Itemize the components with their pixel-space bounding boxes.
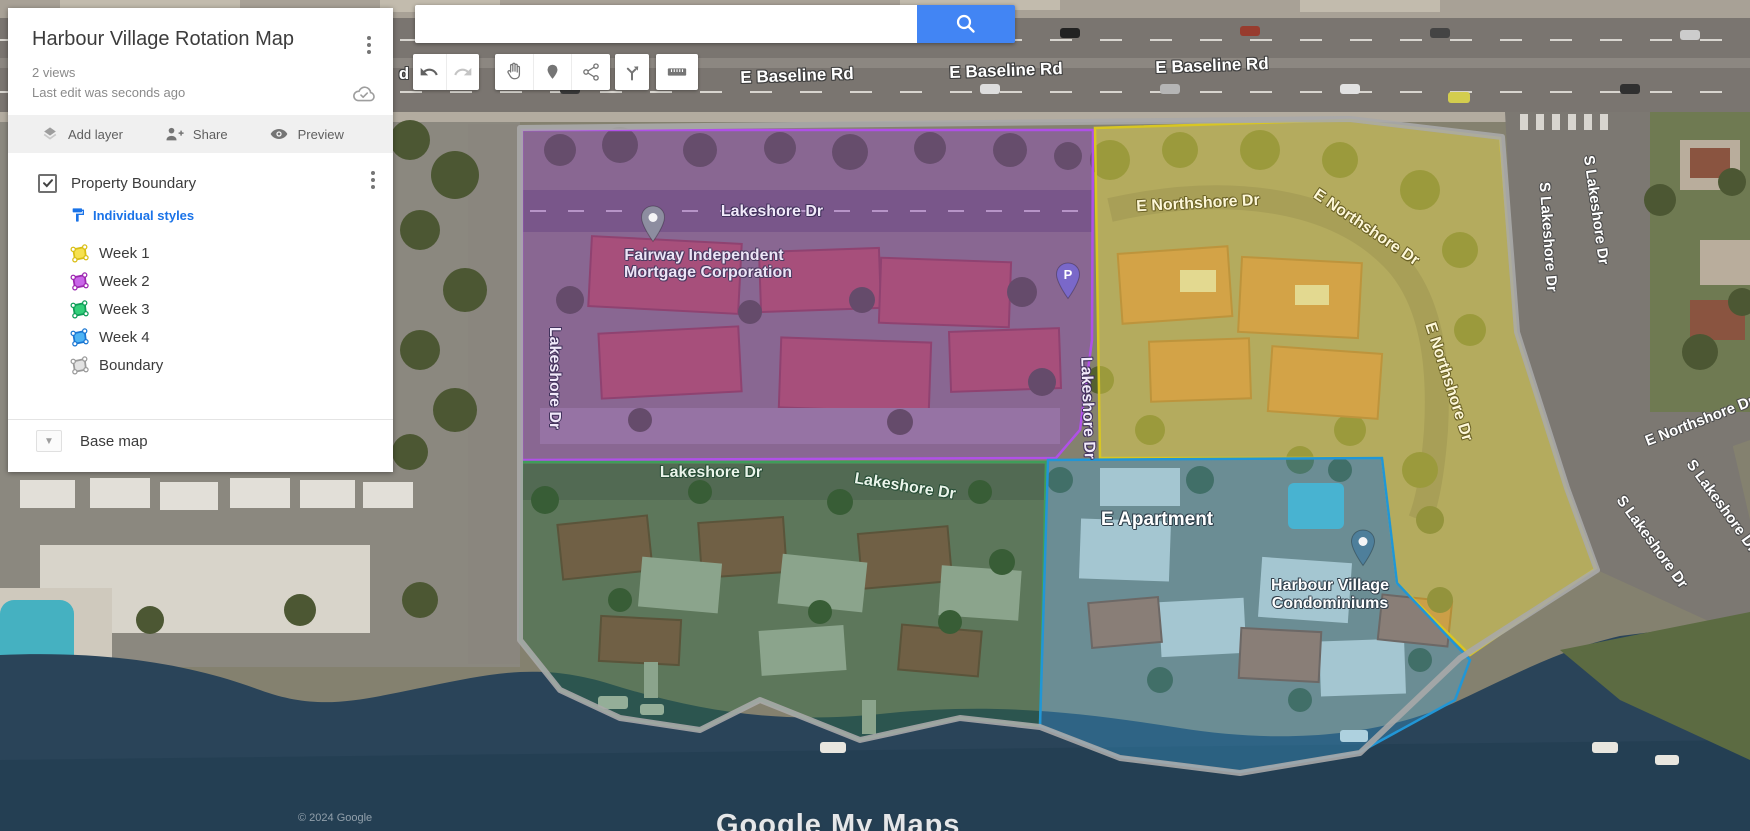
search-bar — [415, 5, 1015, 43]
person-add-icon — [163, 124, 185, 144]
redo-button[interactable] — [446, 54, 480, 90]
location-pin-gray[interactable] — [640, 205, 666, 248]
search-input[interactable] — [415, 5, 917, 43]
draw-line-button[interactable] — [571, 54, 610, 90]
undo-button[interactable] — [413, 54, 446, 90]
add-directions-button[interactable] — [615, 54, 649, 90]
layer-checkbox[interactable] — [38, 174, 57, 193]
page-title: Harbour Village Rotation Map — [32, 28, 379, 51]
layer-item-label: Week 4 — [99, 329, 150, 346]
layer-item-week-3[interactable]: Week 3 — [8, 295, 393, 323]
individual-styles-label: Individual styles — [93, 208, 194, 223]
polygon-icon — [68, 326, 91, 349]
search-button[interactable] — [917, 5, 1015, 43]
share-label: Share — [193, 127, 228, 142]
base-map-label[interactable]: Base map — [80, 433, 148, 450]
location-pin-blue[interactable] — [1350, 529, 1376, 572]
redo-icon — [453, 62, 473, 82]
paint-roller-icon — [70, 207, 86, 223]
my-maps-app: dE Baseline RdE Baseline RdE Baseline Rd… — [0, 0, 1750, 831]
toolbar-measure-group — [656, 54, 698, 90]
last-edit-status: Last edit was seconds ago — [32, 83, 379, 103]
layer-item-label: Week 1 — [99, 245, 150, 262]
parking-pin[interactable]: P — [1055, 262, 1081, 305]
preview-button[interactable]: Preview — [262, 123, 350, 145]
base-map-row: ▼ Base map — [8, 420, 393, 462]
add-marker-button[interactable] — [533, 54, 572, 90]
base-map-expander[interactable]: ▼ — [36, 430, 62, 452]
layer-options-menu[interactable] — [367, 167, 379, 193]
toolbar-draw-group — [495, 54, 610, 90]
draw-line-icon — [581, 62, 601, 82]
layer-item-week-1[interactable]: Week 1 — [8, 239, 393, 267]
preview-label: Preview — [298, 127, 344, 142]
add-layer-button[interactable]: Add layer — [34, 123, 129, 145]
polygon-icon — [68, 298, 91, 321]
toolbar-directions-group — [615, 54, 649, 90]
panel-actions-bar: Add layer Share Preview — [8, 115, 393, 153]
polygon-icon — [68, 354, 91, 377]
hand-icon — [503, 61, 525, 83]
map-editor-panel: Harbour Village Rotation Map 2 views Las… — [8, 8, 393, 472]
layer-item-week-2[interactable]: Week 2 — [8, 267, 393, 295]
map-attribution: © 2024 Google — [298, 812, 372, 824]
pan-hand-button[interactable] — [495, 54, 533, 90]
google-watermark: Google My Maps — [716, 809, 960, 831]
check-icon — [42, 177, 54, 189]
search-icon — [954, 12, 978, 36]
chevron-down-icon: ▼ — [44, 436, 54, 447]
measure-button[interactable] — [656, 54, 698, 90]
toolbar-history-group — [413, 54, 479, 90]
cloud-saved-icon — [351, 82, 377, 104]
eye-icon — [268, 124, 290, 144]
undo-icon — [419, 62, 439, 82]
layer-row-property-boundary: Property Boundary — [8, 169, 393, 197]
map-options-menu[interactable] — [363, 32, 375, 58]
layer-item-boundary[interactable]: Boundary — [8, 351, 393, 379]
views-count: 2 views — [32, 63, 379, 83]
week-3-region[interactable] — [520, 462, 1046, 740]
ruler-icon — [665, 61, 689, 83]
layers-icon — [40, 124, 60, 144]
polygon-icon — [68, 270, 91, 293]
svg-text:P: P — [1064, 267, 1073, 282]
week-2-region[interactable] — [522, 130, 1093, 460]
layer-item-label: Boundary — [99, 357, 163, 374]
layer-item-label: Week 2 — [99, 273, 150, 290]
layer-feature-list: Week 1 Week 2 Week 3 Week 4 — [8, 239, 393, 379]
layer-name[interactable]: Property Boundary — [71, 175, 196, 192]
layer-item-week-4[interactable]: Week 4 — [8, 323, 393, 351]
individual-styles-link[interactable]: Individual styles — [70, 207, 194, 223]
marker-icon — [544, 63, 561, 82]
directions-fork-icon — [622, 62, 642, 82]
share-button[interactable]: Share — [157, 123, 234, 145]
layer-item-label: Week 3 — [99, 301, 150, 318]
add-layer-label: Add layer — [68, 127, 123, 142]
polygon-icon — [68, 242, 91, 265]
